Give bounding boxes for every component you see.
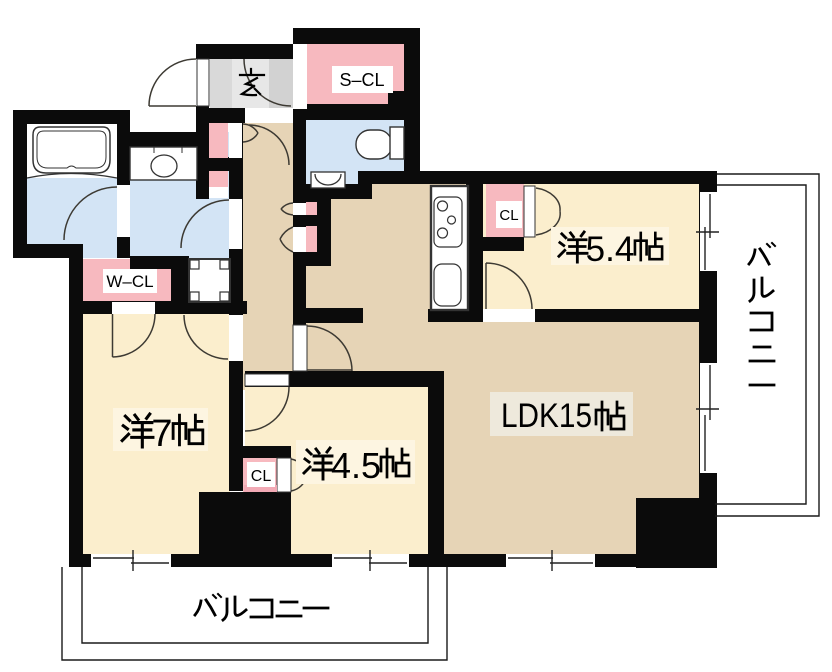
svg-text:4.5: 4.5 (331, 445, 381, 486)
svg-text:5.4: 5.4 (586, 230, 635, 269)
svg-text:CL: CL (499, 207, 518, 224)
svg-text:LDK15: LDK15 (501, 397, 592, 435)
svg-text:CL: CL (251, 468, 272, 485)
svg-text:7: 7 (151, 413, 172, 455)
svg-text:W–CL: W–CL (106, 272, 153, 291)
svg-text:S–CL: S–CL (339, 70, 384, 90)
